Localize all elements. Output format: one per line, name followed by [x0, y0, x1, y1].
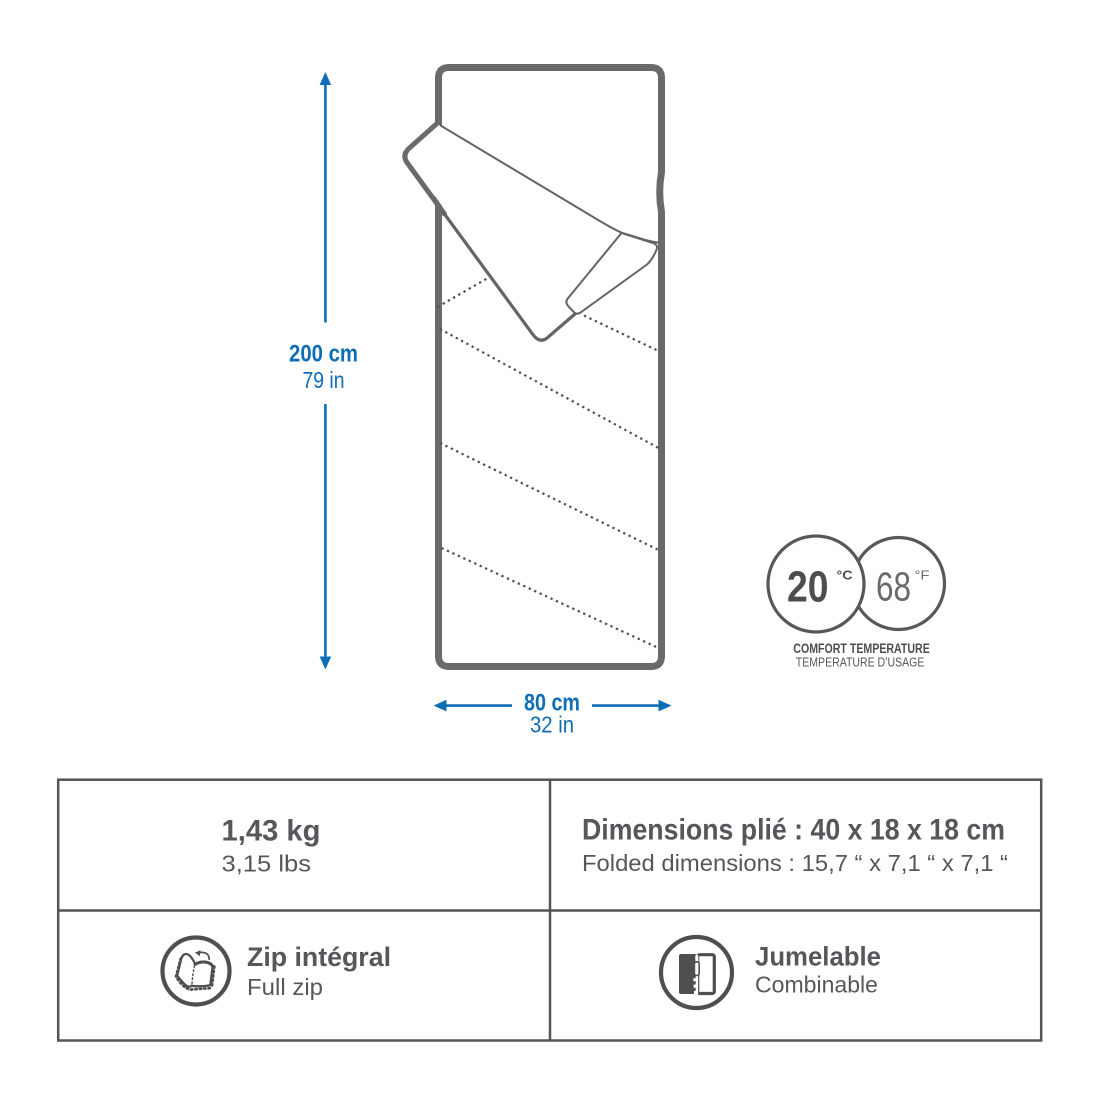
svg-text:1,43 kg: 1,43 kg — [222, 815, 321, 848]
svg-text:°F: °F — [915, 568, 930, 583]
svg-text:Dimensions plié : 40 x 18 x 18: Dimensions plié : 40 x 18 x 18 cm — [582, 814, 1005, 847]
svg-text:32 in: 32 in — [530, 712, 574, 738]
svg-text:Folded dimensions : 15,7 “ x 7: Folded dimensions : 15,7 “ x 7,1 “ x 7,1… — [582, 850, 1008, 876]
svg-text:Jumelable: Jumelable — [755, 942, 881, 972]
svg-text:200 cm: 200 cm — [289, 341, 358, 368]
svg-text:Full zip: Full zip — [247, 974, 323, 1000]
svg-text:79 in: 79 in — [303, 367, 345, 393]
svg-text:TEMPERATURE D’USAGE: TEMPERATURE D’USAGE — [796, 654, 925, 669]
svg-text:Zip intégral: Zip intégral — [247, 942, 391, 972]
svg-text:Combinable: Combinable — [755, 972, 878, 998]
svg-text:°C: °C — [837, 568, 854, 583]
svg-text:3,15 lbs: 3,15 lbs — [222, 851, 312, 877]
svg-text:68: 68 — [876, 564, 911, 610]
svg-text:20: 20 — [787, 563, 829, 612]
